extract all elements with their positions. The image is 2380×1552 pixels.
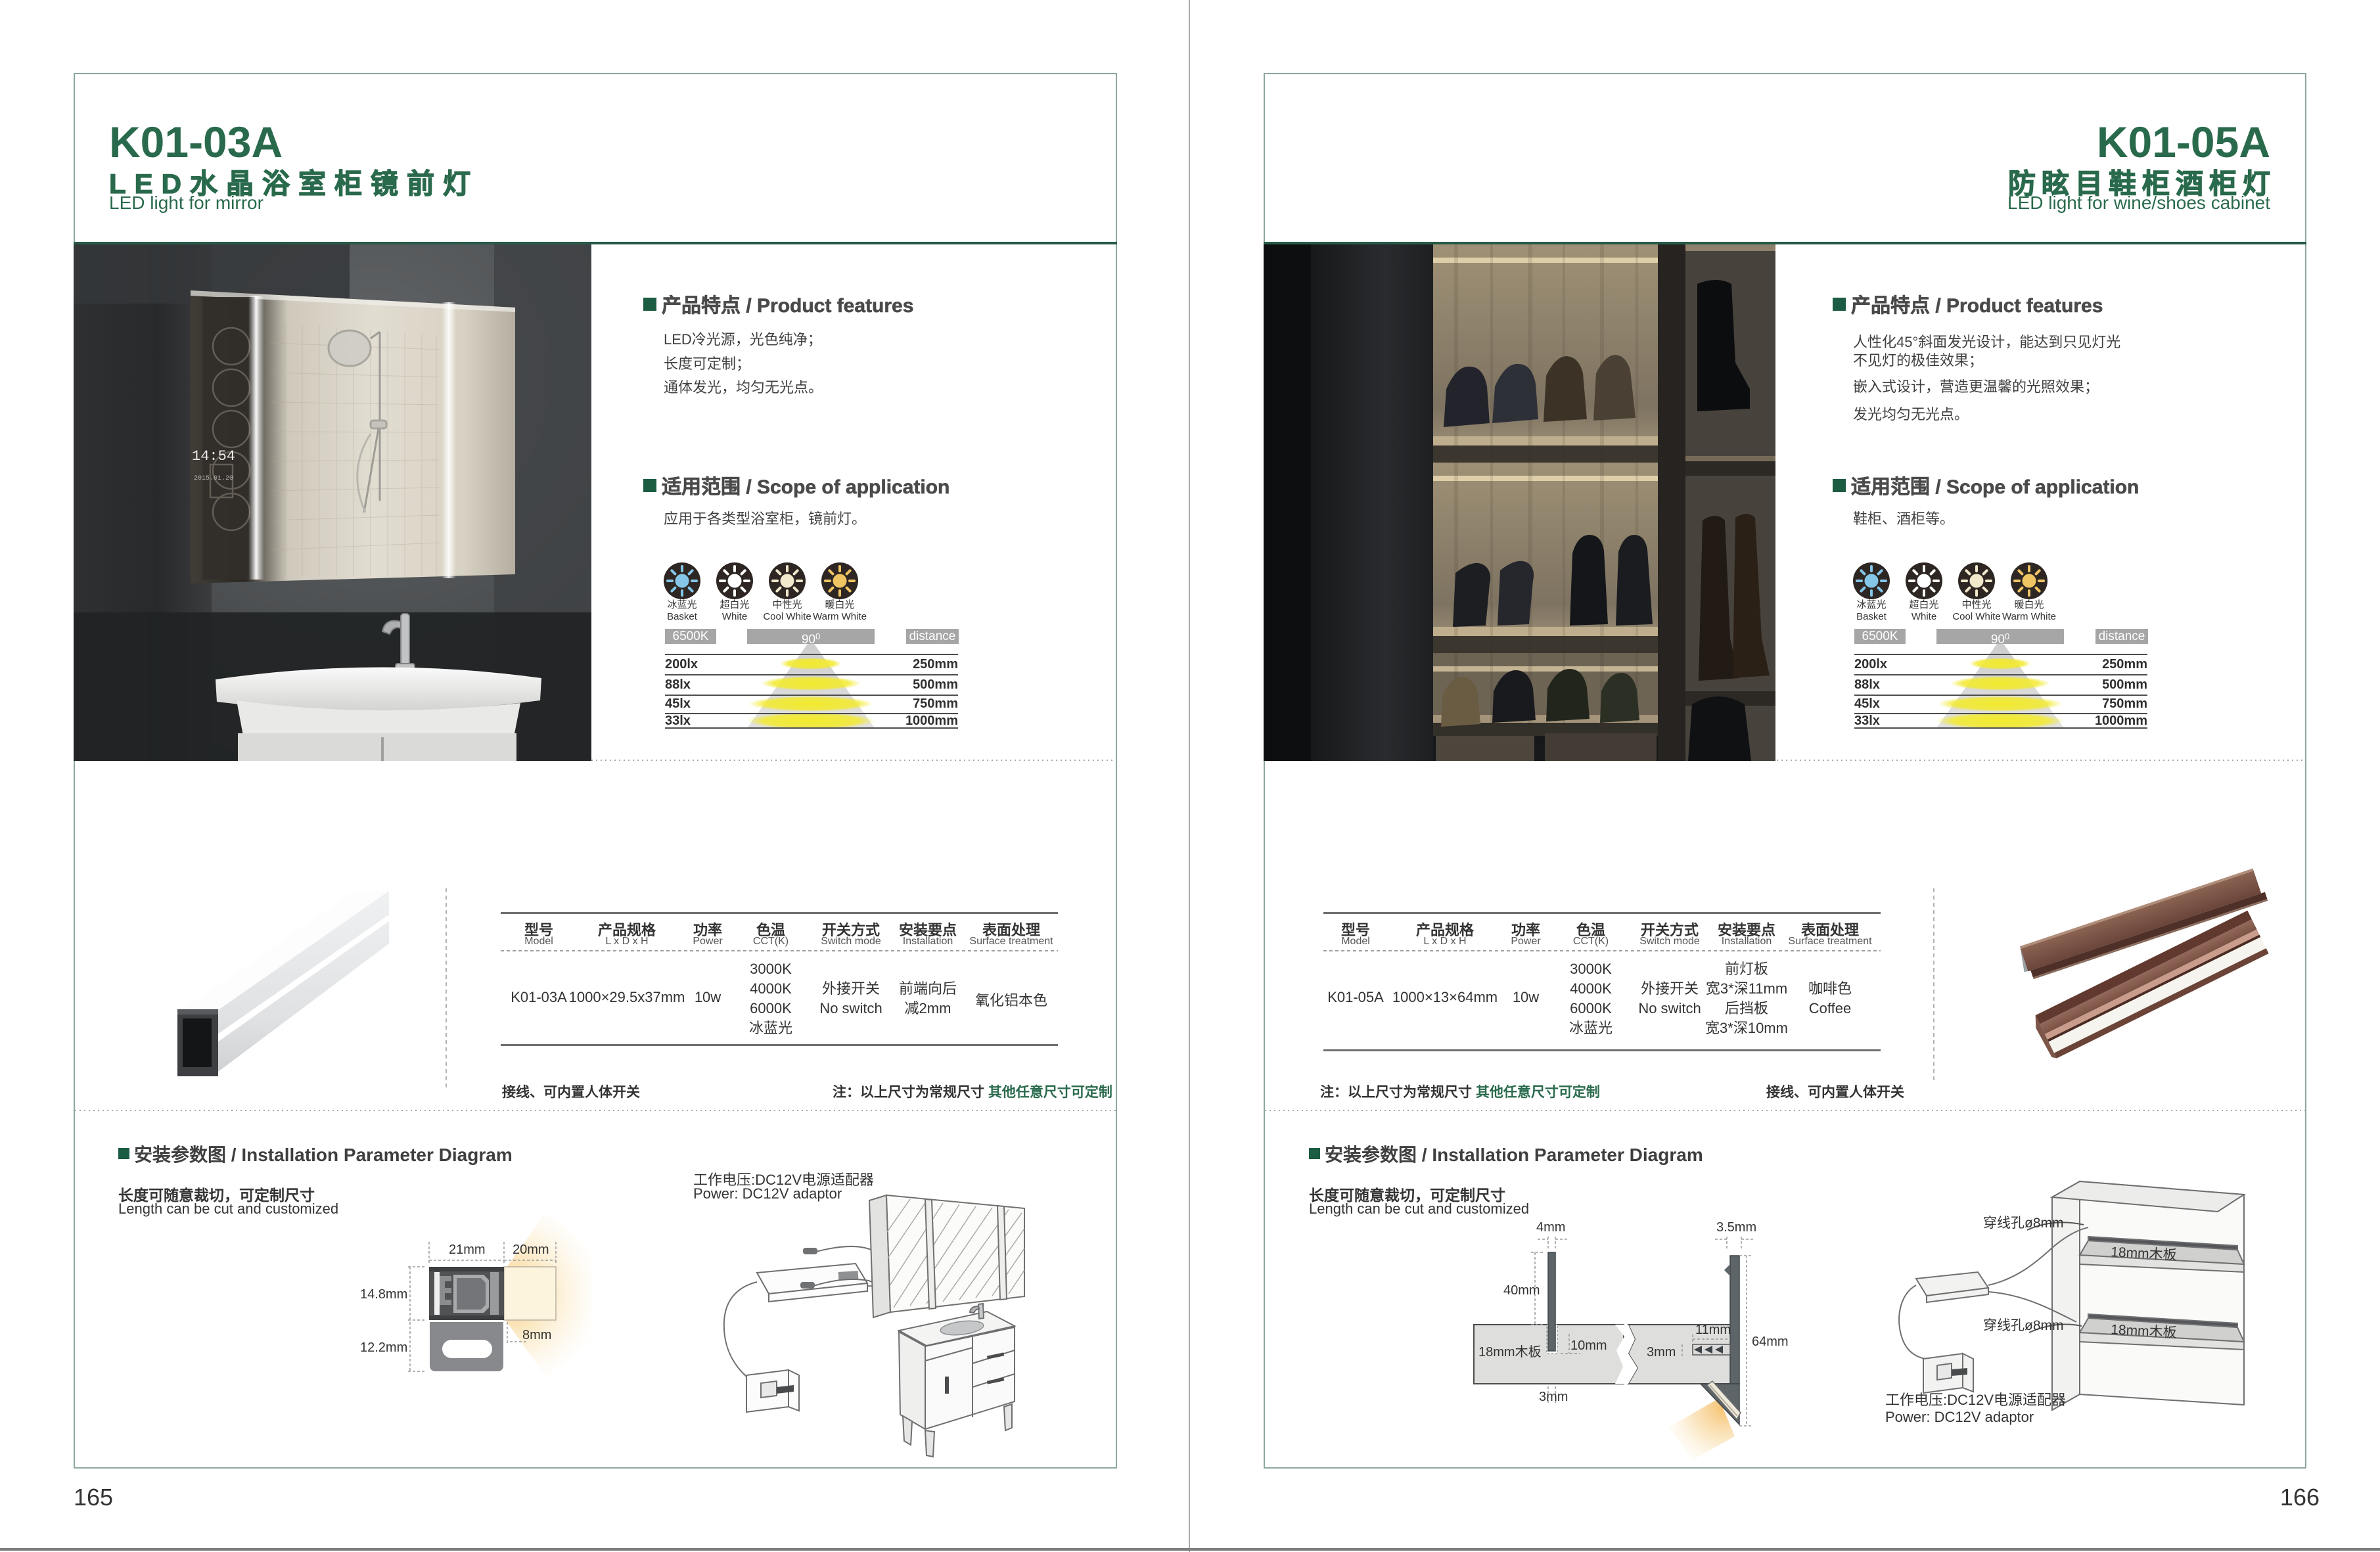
- svg-text:3.5mm: 3.5mm: [1716, 1220, 1756, 1235]
- svg-text:4mm: 4mm: [1536, 1220, 1565, 1235]
- svg-text:3mm: 3mm: [1539, 1390, 1568, 1404]
- svg-text:穿线孔ø8mm: 穿线孔ø8mm: [1983, 1216, 2064, 1231]
- svg-text:2015.01.20: 2015.01.20: [194, 475, 233, 482]
- svg-text:64mm: 64mm: [1752, 1335, 1789, 1349]
- svg-text:Power: DC12V adaptor: Power: DC12V adaptor: [1885, 1409, 2034, 1425]
- svg-text:工作电压:DC12V电源适配器: 工作电压:DC12V电源适配器: [1885, 1392, 2066, 1408]
- svg-text:10mm: 10mm: [1570, 1338, 1607, 1353]
- svg-text:8mm: 8mm: [522, 1328, 551, 1342]
- svg-text:18mm木板: 18mm木板: [1478, 1344, 1542, 1359]
- svg-text:14.8mm: 14.8mm: [360, 1287, 407, 1302]
- svg-text:40mm: 40mm: [1503, 1283, 1540, 1298]
- svg-text:穿线孔ø8mm: 穿线孔ø8mm: [1983, 1318, 2064, 1333]
- svg-text:14:54: 14:54: [192, 448, 235, 465]
- svg-text:3mm: 3mm: [1647, 1345, 1676, 1359]
- svg-text:11mm: 11mm: [1695, 1323, 1731, 1337]
- svg-text:20mm: 20mm: [513, 1243, 549, 1257]
- svg-text:21mm: 21mm: [449, 1243, 486, 1257]
- svg-text:12.2mm: 12.2mm: [360, 1340, 407, 1355]
